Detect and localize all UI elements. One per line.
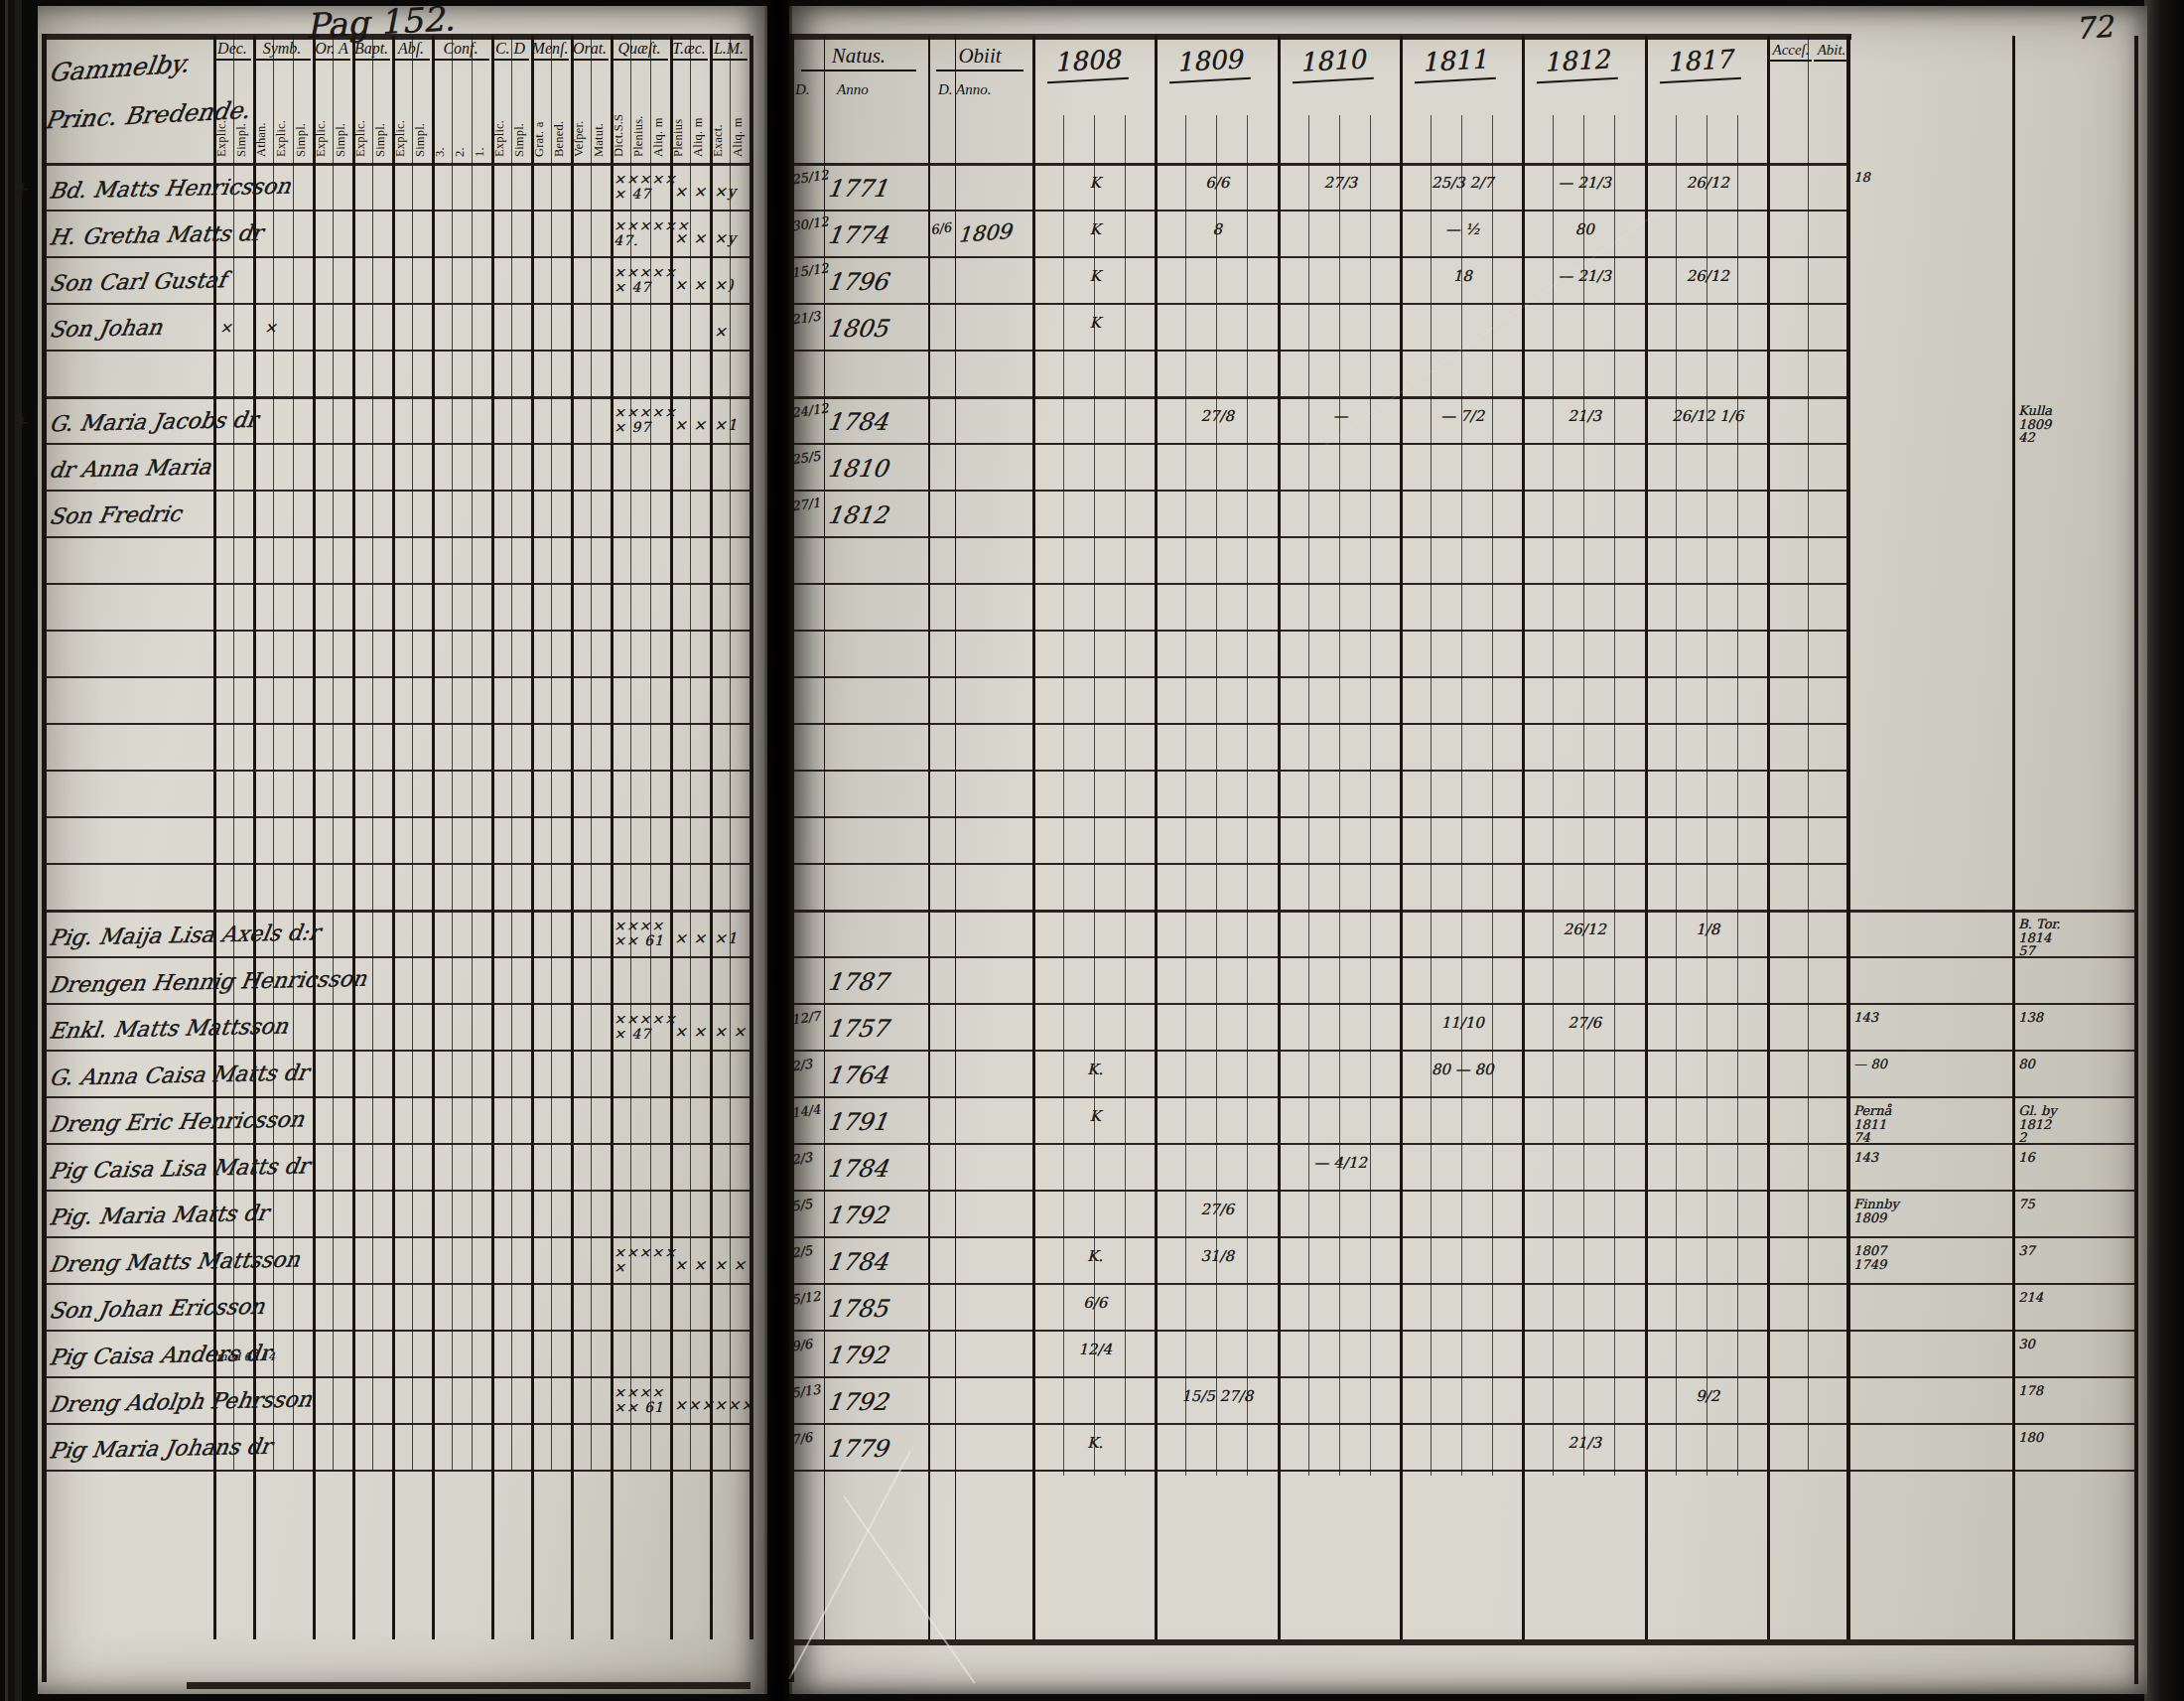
grid-vline: [1522, 36, 1525, 1639]
lm-marks: ×y: [714, 185, 750, 201]
grid-vline: [824, 36, 825, 1639]
grid-hline: [44, 1283, 751, 1285]
column-subheader: 1.: [474, 66, 486, 157]
quaest-marks: ××××× × 47: [614, 172, 671, 201]
abit-note: B. Tor. 1814 57: [2018, 918, 2129, 958]
natus-day: 5/5: [790, 1196, 826, 1213]
natus-year: 1764: [825, 1063, 930, 1088]
corner-folio-number: 72: [2074, 9, 2115, 47]
right-page: 72 Natus. D. Anno Obiit D. Anno. Acceſ. …: [789, 6, 2147, 1694]
row-name: Enkl. Matts Mattsson: [48, 1014, 290, 1042]
taec-marks: × ×: [674, 185, 710, 201]
lm-marks: ×y: [714, 231, 750, 247]
column-subheader: Explic.: [275, 66, 288, 157]
grid-vline: [432, 36, 435, 1639]
grid-vline: [392, 36, 395, 1639]
column-subheader: Athan.: [255, 66, 268, 157]
grid-hline: [791, 163, 1848, 166]
grid-hline: [791, 863, 1848, 865]
acces-note: 1807 1749: [1853, 1244, 2004, 1271]
lm-marks: ×××: [714, 1398, 750, 1414]
grid-vline: [313, 36, 316, 1639]
column-header-9: Quæſt.: [611, 40, 668, 61]
column-subheader: Bened.: [553, 66, 566, 157]
natus-day: 7/6: [790, 1429, 826, 1447]
column-subheader: Plenius: [672, 66, 685, 157]
column-subheader: Simpl.: [414, 66, 427, 157]
lm-marks: × ×: [714, 1258, 750, 1274]
column-header-11: L.M.: [710, 40, 748, 61]
grid-vline-thin: [333, 36, 334, 1470]
natus-day: 27/1: [790, 496, 826, 513]
column-subheader: Simpl.: [513, 66, 526, 157]
lm-marks: ×1: [714, 931, 750, 947]
column-subheader: Simpl.: [295, 66, 308, 157]
column-subheader: Dict.S.S: [613, 66, 625, 157]
grid-hline: [44, 350, 751, 352]
year-entry-1817: 9/2: [1651, 1389, 1764, 1405]
grid-hline: [44, 1330, 751, 1332]
grid-hline: [791, 1376, 2134, 1378]
obiit-year: 1809: [957, 218, 1034, 245]
column-subheader: Explic.: [394, 66, 407, 157]
grid-vline: [491, 36, 494, 1639]
natus-day: 9/6: [790, 1336, 826, 1353]
grid-hline: [44, 443, 751, 445]
natus-year: 1791: [825, 1110, 930, 1135]
book-gutter-shadow: [764, 0, 792, 1701]
year-header-1809: 1809: [1167, 44, 1251, 83]
year-entry-1810: 27/3: [1284, 176, 1397, 192]
row-name: Dreng Adolph Pehrsson: [48, 1387, 314, 1416]
grid-vline-thin: [372, 36, 373, 1470]
grid-vline: [571, 36, 574, 1639]
lm-marks: ×1: [714, 418, 750, 434]
year-entry-1809: 27/8: [1160, 409, 1274, 425]
row-annotation: med 63 14: [216, 1351, 345, 1363]
grid-hline: [791, 350, 1848, 352]
grid-hline: [44, 583, 751, 585]
row-name: Bd. Matts Henricsson: [48, 174, 293, 202]
grid-vline-thin: [1583, 115, 1584, 1476]
natus-year: 1792: [825, 1390, 930, 1415]
grid-hline: [44, 536, 751, 538]
column-header-10: T.æc.: [670, 40, 708, 61]
natus-column-label: Natus.: [801, 44, 916, 71]
natus-sub-d: D.: [795, 81, 810, 98]
quaest-marks: ××××× × 97: [614, 405, 671, 434]
natus-year: 1771: [825, 177, 930, 202]
column-subheader: Aliq. m: [692, 66, 705, 157]
grid-hline: [44, 396, 751, 399]
year-entry-1809: 27/6: [1160, 1203, 1274, 1218]
grid-hline: [791, 303, 1848, 305]
year-entry-1817: 26/12 1/6: [1651, 409, 1764, 425]
abit-note: 214: [2018, 1291, 2129, 1305]
natus-day: 5/13: [790, 1382, 826, 1400]
grid-vline: [2134, 36, 2138, 1684]
left-page: Pag 152. Gammelby. Princ. Bredende. Dec.…: [38, 6, 767, 1694]
column-header-7: Menſ.: [531, 40, 569, 61]
grid-vline: [2012, 36, 2015, 1639]
lm-marks: ×: [714, 325, 750, 341]
natus-year: 1757: [825, 1017, 930, 1042]
grid-hline: [791, 723, 1848, 725]
column-header-2: Or. A: [313, 40, 350, 61]
grid-vline-thin: [511, 36, 512, 1470]
grid-hline: [44, 1376, 751, 1378]
grid-vline-thin: [551, 36, 552, 1470]
natus-year: 1792: [825, 1204, 930, 1228]
natus-year: 1779: [825, 1437, 930, 1462]
grid-vline-thin: [1370, 115, 1371, 1476]
grid-hline: [791, 256, 1848, 258]
grid-vline: [955, 36, 956, 1639]
year-entry-1810: —: [1284, 409, 1397, 425]
acces-note: 143: [1853, 1151, 2004, 1165]
taec-marks: × ×: [674, 931, 710, 947]
grid-vline: [1645, 36, 1648, 1639]
year-entry-1811: 25/3 2/7: [1406, 176, 1519, 192]
quaest-marks: ×××× ×× 61: [614, 1385, 671, 1414]
column-subheader: Exact.: [712, 66, 725, 157]
acces-note: — 80: [1853, 1058, 2004, 1071]
taec-marks: × ×: [674, 418, 710, 434]
grid-hline: [44, 1096, 751, 1098]
taec-marks: × ×: [674, 231, 710, 247]
dec-mark: ×: [219, 321, 253, 337]
book-right-edge: [2144, 0, 2184, 1701]
column-subheader: 3.: [434, 66, 447, 157]
margin-cross-mark: +: [12, 410, 29, 434]
grid-hline: [791, 1003, 2134, 1005]
grid-hline: [44, 210, 751, 212]
year-header-1812: 1812: [1535, 44, 1618, 83]
column-header-3: Bapt.: [352, 40, 390, 61]
grid-bottom-rule: [187, 1682, 751, 1689]
year-entry-1809: 15/5 27/8: [1160, 1389, 1274, 1405]
column-subheader: Simpl.: [374, 66, 387, 157]
column-header-1: Symb.: [253, 40, 311, 61]
year-header-1810: 1810: [1291, 44, 1374, 83]
grid-vline-thin: [690, 36, 691, 1470]
taec-marks: × ×: [674, 1025, 710, 1041]
grid-hline: [791, 1330, 2134, 1332]
quaest-marks: ××××× × 47: [614, 1012, 671, 1041]
natus-day: 2/3: [790, 1056, 826, 1073]
grid-hline: [44, 1236, 751, 1238]
grid-vline-thin: [1614, 115, 1615, 1476]
natus-year: 1785: [825, 1297, 930, 1322]
grid-vline: [1032, 36, 1035, 1639]
row-name: Son Fredric: [48, 502, 183, 528]
quaest-marks: ××××× × 47: [614, 265, 671, 294]
book-left-edge: [0, 0, 38, 1701]
symb-mark: ×: [264, 321, 310, 337]
abit-note: 30: [2018, 1338, 2129, 1351]
year-entry-1808: K: [1038, 269, 1152, 285]
abit-note: 80: [2018, 1058, 2129, 1071]
margin-cross-mark: +: [12, 177, 29, 201]
year-entry-1817: 26/12: [1651, 269, 1764, 285]
grid-vline-thin: [1737, 115, 1738, 1476]
abit-note: 138: [2018, 1011, 2129, 1025]
year-header-1817: 1817: [1658, 44, 1741, 83]
grid-vline-thin: [1461, 115, 1462, 1476]
natus-year: 1784: [825, 410, 930, 435]
year-entry-1812: 21/3: [1528, 409, 1641, 425]
grid-hline: [44, 956, 751, 958]
row-name: Son Carl Gustaf: [48, 268, 227, 295]
abit-column-label: Abit.: [1814, 42, 1849, 62]
grid-hline: [44, 1143, 751, 1145]
grid-top-rule: [791, 34, 1851, 40]
year-entry-1810: — 4/12: [1284, 1156, 1397, 1172]
column-subheader: Simpl.: [235, 66, 248, 157]
grid-vline-thin: [1431, 115, 1432, 1476]
grid-vline-thin: [730, 36, 731, 1470]
year-entry-1808: K: [1038, 1109, 1152, 1125]
column-header-0: Dec.: [213, 40, 251, 61]
row-name: Dreng Matts Mattsson: [48, 1247, 302, 1275]
obiit-column-label: Obiit: [936, 44, 1024, 71]
year-entry-1812: — 21/3: [1528, 176, 1641, 192]
grid-hline: [791, 583, 1848, 585]
village-title-line1: Gammelby.: [47, 49, 192, 87]
obiit-sub-d-anno: D. Anno.: [938, 81, 991, 98]
year-entry-1808: 12/4: [1038, 1343, 1152, 1358]
grid-vline: [352, 36, 355, 1639]
natus-year: 1796: [825, 270, 930, 295]
grid-vline-thin: [412, 36, 413, 1470]
column-header-6: C. D: [491, 40, 529, 61]
column-subheader: Explic.: [493, 66, 506, 157]
grid-vline: [1278, 36, 1281, 1639]
abit-note: Gl. by 1812 2: [2018, 1104, 2129, 1145]
grid-hline: [44, 910, 751, 913]
year-entry-1809: 6/6: [1160, 176, 1274, 192]
grid-vline-thin: [1553, 115, 1554, 1476]
row-name: H. Gretha Matts dr: [48, 221, 264, 249]
abit-note: 178: [2018, 1384, 2129, 1398]
column-subheader: Aliq. m: [732, 66, 745, 157]
grid-hline: [791, 1236, 2134, 1238]
column-subheader: Explic.: [315, 66, 328, 157]
row-name: G. Maria Jacobs dr: [48, 408, 259, 435]
grid-hline: [44, 1003, 751, 1005]
natus-day: 25/5: [790, 449, 826, 467]
natus-year: 1812: [825, 503, 930, 528]
grid-hline: [791, 443, 1848, 445]
natus-day: 2/5: [790, 1242, 826, 1260]
grid-hline: [791, 816, 1848, 818]
natus-day: 15/12: [790, 262, 826, 280]
column-subheader: 2.: [454, 66, 467, 157]
grid-hline: [44, 723, 751, 725]
grid-hline: [44, 1190, 751, 1192]
year-entry-1817: 1/8: [1651, 922, 1764, 938]
grid-hline: [791, 1283, 2134, 1285]
grid-vline: [1846, 36, 1850, 1639]
year-entry-1812: 26/12: [1528, 922, 1641, 938]
row-name: Son Johan: [48, 316, 164, 341]
abit-note: Kulla 1809 42: [2018, 404, 2129, 445]
row-name: G. Anna Caisa Matts dr: [48, 1061, 310, 1089]
grid-hline: [791, 910, 2134, 913]
natus-year: 1810: [825, 457, 930, 482]
natus-year: 1784: [825, 1250, 930, 1275]
grid-hline: [791, 676, 1848, 678]
natus-day: 14/4: [790, 1102, 826, 1120]
column-subheader: Aliq. m: [652, 66, 665, 157]
natus-year: 1792: [825, 1344, 930, 1368]
quaest-marks: ××××× ×: [614, 1245, 671, 1274]
grid-hline: [791, 630, 1848, 632]
year-entry-1811: 80 — 80: [1406, 1063, 1519, 1078]
grid-hline: [44, 490, 751, 492]
column-subheader: Explic.: [215, 66, 228, 157]
year-entry-1808: K.: [1038, 1063, 1152, 1078]
ledger-scan: Pag 152. Gammelby. Princ. Bredende. Dec.…: [0, 0, 2184, 1701]
natus-day: 5/12: [790, 1289, 826, 1307]
grid-vline-thin: [452, 36, 453, 1470]
natus-day: 2/3: [790, 1149, 826, 1167]
grid-vline-thin: [1706, 115, 1707, 1476]
row-name: dr Anna Maria: [48, 455, 212, 481]
natus-year: 1787: [825, 970, 930, 995]
year-entry-1811: 11/10: [1406, 1016, 1519, 1032]
natus-year: 1784: [825, 1157, 930, 1182]
year-entry-1808: K: [1038, 316, 1152, 332]
grid-hline: [791, 210, 1848, 212]
grid-vline: [1400, 36, 1403, 1639]
row-name: Pig. Maija Lisa Axels d:r: [48, 921, 322, 949]
acces-note: 18: [1853, 171, 2004, 185]
grid-hline: [791, 1050, 2134, 1052]
year-entry-1812: — 21/3: [1528, 269, 1641, 285]
grid-hline: [791, 1470, 2134, 1472]
grid-vline-thin: [1308, 115, 1309, 1476]
year-entry-1811: — 7/2: [1406, 409, 1519, 425]
natus-day: 25/12: [790, 169, 826, 187]
grid-vline-thin: [1185, 115, 1186, 1476]
grid-vline-thin: [591, 36, 592, 1470]
row-name: Dreng Eric Henricsson: [48, 1107, 306, 1135]
grid-hline: [44, 630, 751, 632]
taec-marks: × ×: [674, 278, 710, 294]
grid-vline: [1155, 36, 1158, 1639]
column-subheader: Grat. a: [533, 66, 546, 157]
taec-marks: ×××: [674, 1398, 710, 1414]
abit-note: 75: [2018, 1198, 2129, 1211]
year-entry-1812: 21/3: [1528, 1436, 1641, 1452]
quaest-marks: ×××× ×× 61: [614, 919, 671, 947]
grid-vline-thin: [1339, 115, 1340, 1476]
natus-day: 30/12: [790, 215, 826, 233]
acces-note: Pernå 1811 74: [1853, 1104, 2004, 1145]
grid-hline: [791, 396, 1848, 399]
grid-vline-thin: [1676, 115, 1677, 1476]
year-entry-1808: 6/6: [1038, 1296, 1152, 1312]
column-subheader: Matut.: [593, 66, 606, 157]
quaest-marks: ×××××× 47.: [614, 218, 671, 247]
grid-hline: [44, 1423, 751, 1425]
column-subheader: Plenius.: [632, 66, 645, 157]
grid-vline-thin: [472, 36, 473, 1470]
natus-year: 1805: [825, 317, 930, 342]
acces-column-label: Acceſ.: [1770, 42, 1812, 62]
abit-note: 180: [2018, 1431, 2129, 1445]
grid-hline: [44, 863, 751, 865]
year-entry-1809: 31/8: [1160, 1249, 1274, 1265]
grid-bottom-rule: [791, 1639, 2134, 1645]
column-header-8: Orat.: [571, 40, 609, 61]
grid-hline: [44, 1470, 751, 1472]
natus-day: 21/3: [790, 309, 826, 327]
year-entry-1808: K: [1038, 176, 1152, 192]
grid-vline-thin: [1216, 115, 1217, 1476]
grid-hline: [44, 163, 751, 166]
grid-hline: [791, 536, 1848, 538]
grid-hline: [791, 770, 1848, 772]
grid-hline: [791, 1423, 2134, 1425]
row-name: Pig. Maria Matts dr: [48, 1202, 270, 1229]
lm-marks: × ×: [714, 1025, 750, 1041]
year-header-1808: 1808: [1045, 44, 1129, 83]
grid-vline-thin: [1808, 36, 1809, 1470]
natus-day: 24/12: [790, 402, 826, 420]
column-subheader: Simpl.: [335, 66, 347, 157]
year-entry-1808: K: [1038, 222, 1152, 238]
grid-hline: [44, 816, 751, 818]
grid-hline: [44, 1050, 751, 1052]
row-name: Son Johan Ericsson: [48, 1295, 266, 1323]
natus-day: 12/7: [790, 1009, 826, 1027]
year-entry-1811: 18: [1406, 269, 1519, 285]
natus-year: 1774: [825, 223, 930, 248]
year-entry-1808: K.: [1038, 1249, 1152, 1265]
year-entry-1817: 26/12: [1651, 176, 1764, 192]
grid-vline: [531, 36, 534, 1639]
column-header-4: Abſ.: [392, 40, 430, 61]
grid-hline: [791, 956, 2134, 958]
grid-vline: [42, 34, 47, 1682]
acces-note: Finnby 1809: [1853, 1198, 2004, 1224]
column-subheader: Explic.: [354, 66, 367, 157]
grid-hline: [44, 676, 751, 678]
row-name: Drengen Hennig Henricsson: [48, 967, 368, 997]
grid-hline: [44, 770, 751, 772]
year-entry-1812: 27/6: [1528, 1016, 1641, 1032]
acces-note: 143: [1853, 1011, 2004, 1025]
taec-marks: × ×: [674, 1258, 710, 1274]
grid-vline-thin: [1247, 115, 1248, 1476]
grid-hline: [44, 303, 751, 305]
grid-hline: [791, 1190, 2134, 1192]
abit-note: 16: [2018, 1151, 2129, 1165]
grid-vline: [1767, 36, 1770, 1639]
grid-hline: [791, 490, 1848, 492]
lm-marks: ×): [714, 278, 750, 294]
row-name: Pig Maria Johans dr: [48, 1435, 273, 1463]
year-entry-1809: 8: [1160, 222, 1274, 238]
grid-hline: [791, 1096, 2134, 1098]
row-name: Pig Caisa Lisa Matts dr: [48, 1154, 311, 1183]
abit-note: 37: [2018, 1244, 2129, 1258]
grid-hline: [44, 256, 751, 258]
year-header-1811: 1811: [1413, 44, 1496, 83]
year-entry-1811: — ½: [1406, 222, 1519, 238]
